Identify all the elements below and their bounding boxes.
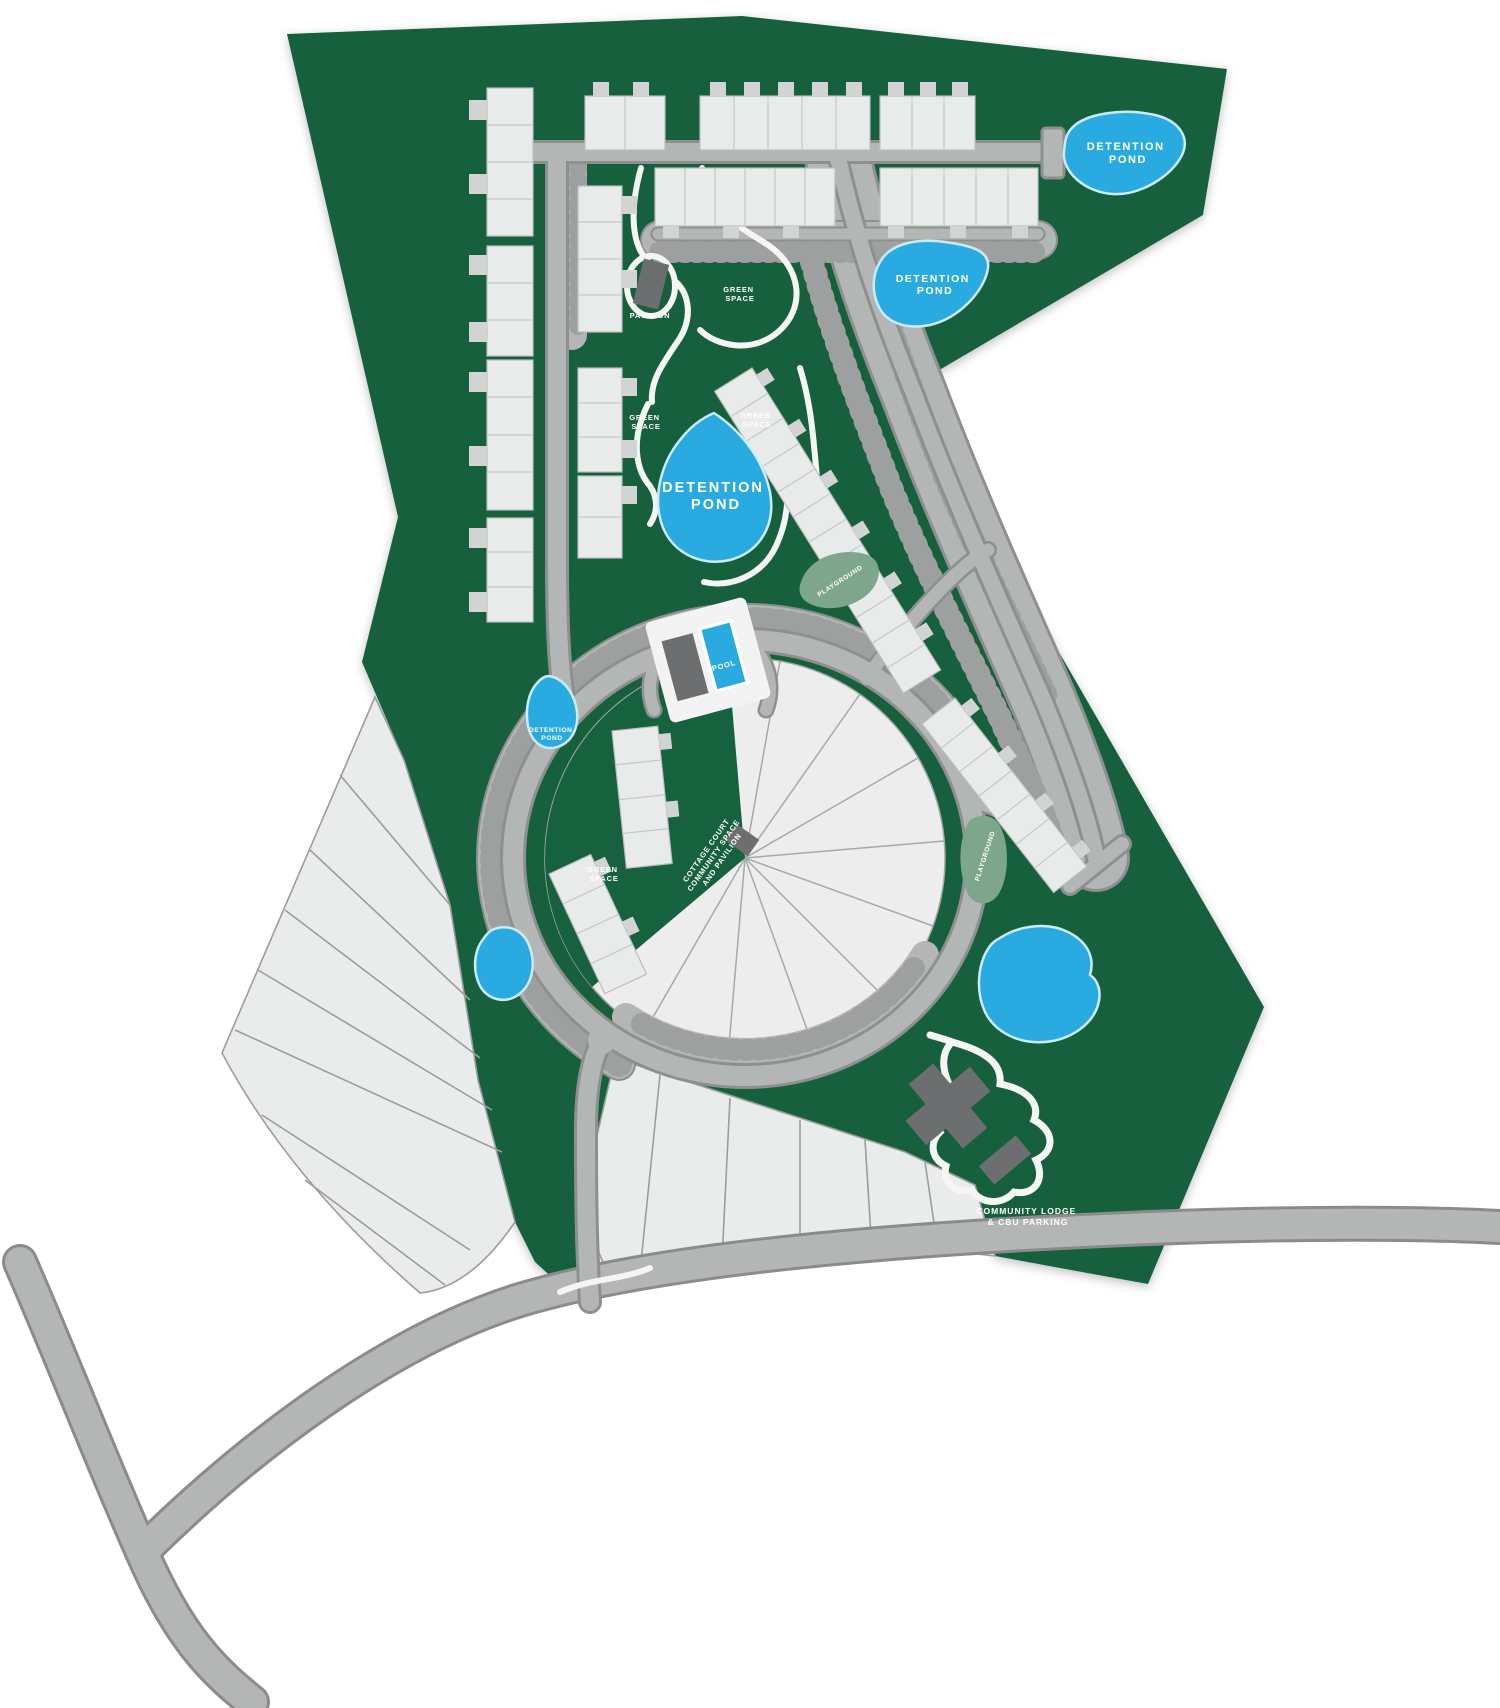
top-road-culdesac xyxy=(1042,128,1064,178)
pond-southwest xyxy=(475,927,533,999)
pond-southeast xyxy=(979,926,1100,1042)
pavilion-label: PAVILION xyxy=(630,311,671,320)
green-space-label: GREEN SPACE xyxy=(740,411,774,429)
public-road xyxy=(20,1224,1500,1702)
green-space-label: GREEN SPACE xyxy=(587,865,621,883)
community-lodge-label: COMMUNITY LODGE & CBU PARKING xyxy=(976,1206,1079,1227)
site-plan-map: DETENTION POND DETENTION POND DETENTION … xyxy=(0,0,1500,1708)
green-space-label: GREEN SPACE xyxy=(723,285,757,303)
green-space-label: GREEN SPACE xyxy=(629,413,663,431)
